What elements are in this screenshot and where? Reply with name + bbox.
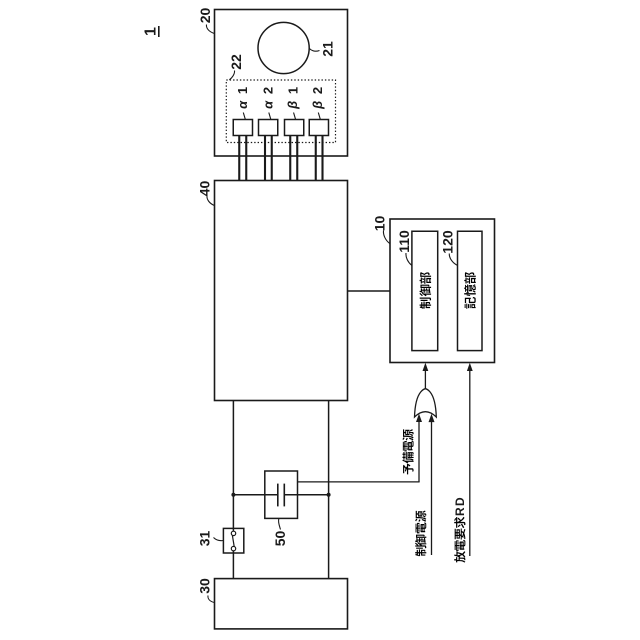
svg-text:20: 20	[197, 8, 213, 24]
svg-text:1: 1	[235, 87, 250, 94]
svg-text:α: α	[261, 100, 276, 109]
svg-text:10: 10	[372, 216, 388, 232]
svg-text:31: 31	[197, 531, 213, 547]
svg-text:2: 2	[310, 87, 325, 94]
svg-text:2: 2	[261, 87, 276, 94]
svg-text:1: 1	[142, 27, 159, 36]
svg-text:α: α	[235, 100, 250, 109]
svg-text:β: β	[285, 101, 300, 110]
svg-text:40: 40	[197, 181, 213, 197]
svg-text:D: D	[453, 497, 467, 506]
svg-text:β: β	[310, 101, 325, 110]
svg-text:21: 21	[320, 41, 336, 57]
svg-text:1: 1	[285, 87, 300, 94]
svg-text:30: 30	[197, 578, 213, 594]
svg-text:R: R	[453, 507, 467, 516]
svg-text:120: 120	[439, 230, 455, 254]
svg-text:110: 110	[396, 230, 412, 253]
svg-text:50: 50	[272, 531, 288, 547]
svg-text:22: 22	[228, 54, 244, 70]
